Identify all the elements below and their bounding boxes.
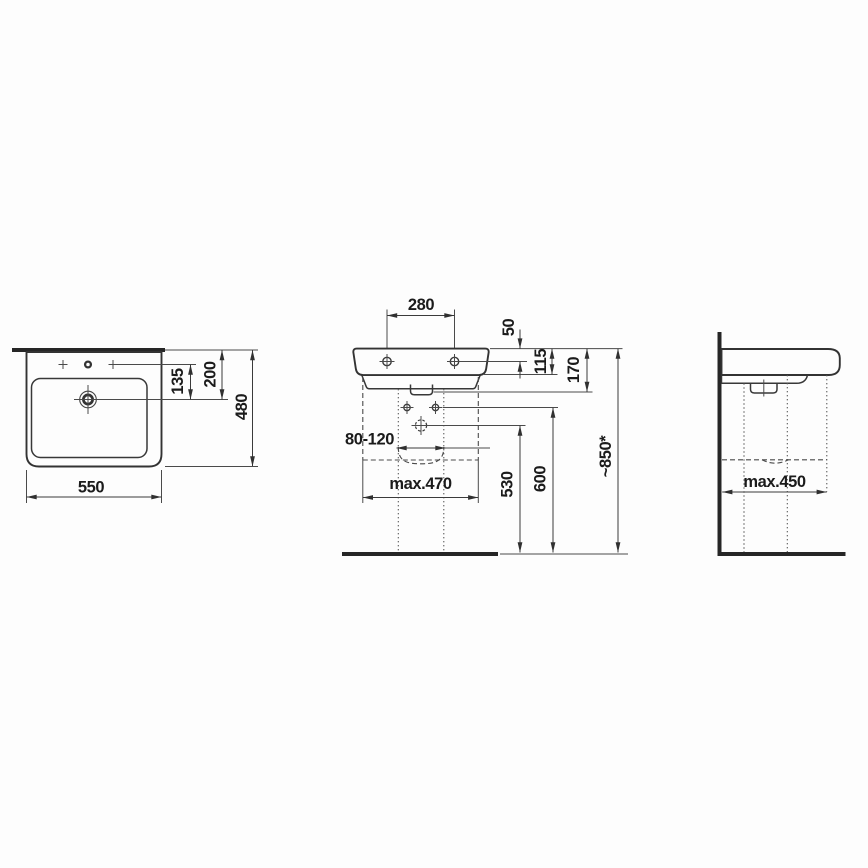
dim-label-170: 170 <box>565 357 583 384</box>
dim-label-280: 280 <box>408 296 435 314</box>
dim-label-850: ~850* <box>597 435 615 478</box>
side-view: max.450 <box>718 332 846 556</box>
dim-label-530: 530 <box>499 471 517 498</box>
trap-cover-front-view <box>411 385 433 395</box>
dim-label-115: 115 <box>532 349 550 375</box>
basin-apron-side-view <box>722 375 808 383</box>
basin-profile-side-view <box>722 349 840 375</box>
top-view: 550 135 200 480 <box>12 348 258 503</box>
dim-label-200: 200 <box>202 361 220 388</box>
dim-label-80-120: 80-120 <box>345 431 394 449</box>
side-view-floor-line <box>718 552 846 556</box>
dim-label-600: 600 <box>532 466 550 493</box>
technical-drawing-canvas: 550 135 200 480 280 <box>0 0 868 868</box>
siphon-arc <box>398 447 444 464</box>
dim-label-135: 135 <box>169 368 187 395</box>
front-view-floor-line <box>342 552 498 556</box>
basin-outer-top-view <box>27 352 162 467</box>
dim-label-depth-480: 480 <box>233 394 251 421</box>
dim-label-width-550: 550 <box>78 479 105 497</box>
dim-label-max450: max.450 <box>743 473 806 491</box>
drain-outlet <box>412 416 431 435</box>
supply-connections <box>401 401 443 414</box>
dim-label-50: 50 <box>500 319 518 337</box>
front-view: 280 <box>342 296 628 556</box>
dim-label-max470: max.470 <box>389 475 452 493</box>
washbasin-drawing: 550 135 200 480 280 <box>0 0 868 868</box>
basin-apron-front-view <box>362 375 480 389</box>
